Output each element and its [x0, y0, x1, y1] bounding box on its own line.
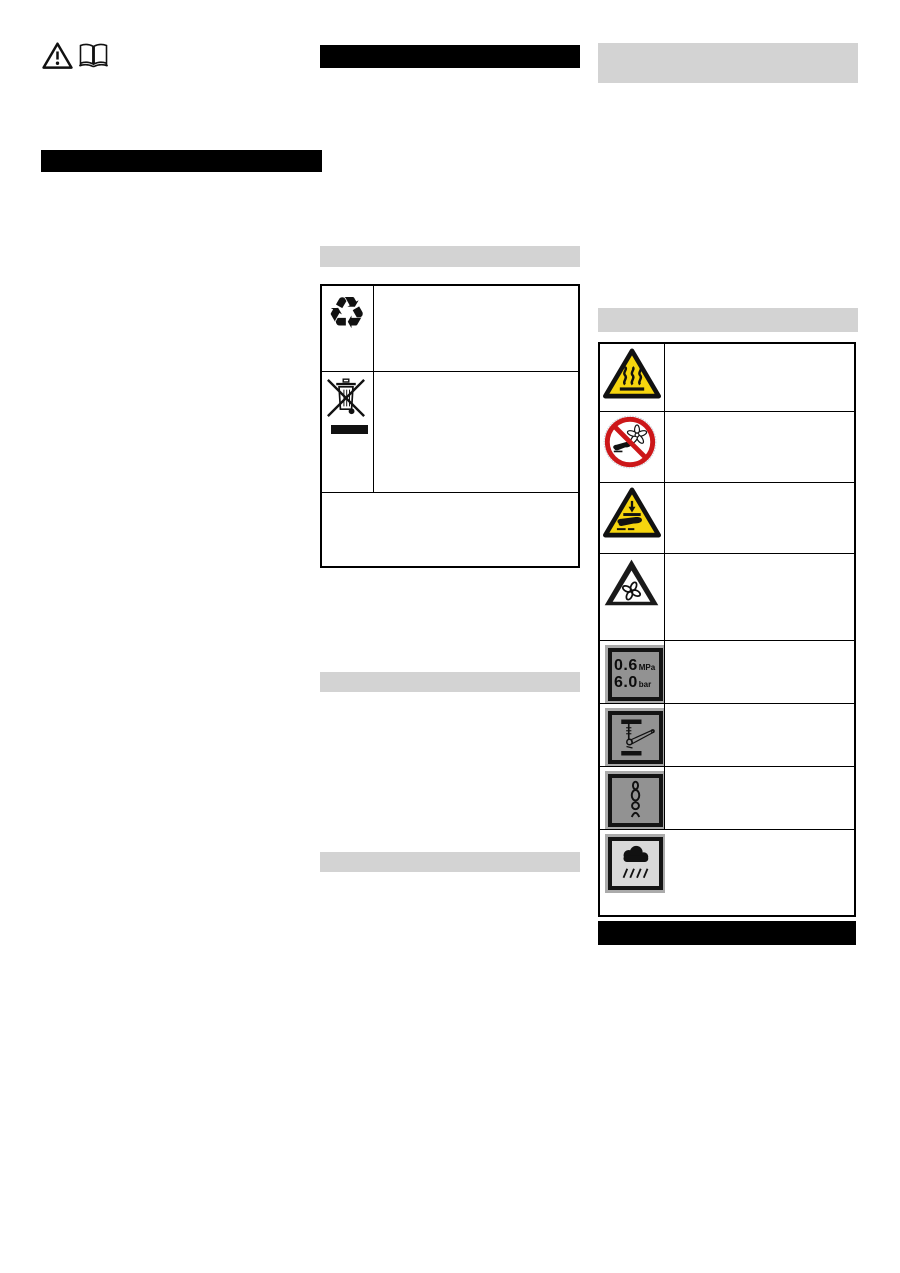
table-cell-description [374, 286, 578, 372]
disposal-symbols-table: ♻ [320, 284, 580, 568]
jack-point-plate-icon [608, 711, 663, 764]
middle-section-bar-3 [320, 852, 580, 872]
right-subheading-bar [598, 308, 858, 332]
read-manual-book-icon [77, 41, 110, 71]
pressure-value-mpa: 0.6 [614, 658, 638, 674]
hot-surface-warning-icon [603, 347, 661, 400]
table-cell-description [665, 641, 854, 704]
middle-section-bar-2 [320, 672, 580, 692]
hand-crush-warning-icon [603, 486, 661, 539]
table-cell-icon [600, 483, 665, 554]
table-cell-icon: ♻ [322, 286, 374, 372]
pressure-unit-mpa: MPa [639, 664, 655, 672]
middle-column-heading-bar [320, 45, 580, 68]
recycling-arrows-icon: ♻ [327, 289, 366, 338]
table-cell-icon [600, 830, 665, 915]
table-cell-description [665, 554, 854, 641]
table-cell-description [665, 344, 854, 412]
right-column-footer-bar [598, 921, 856, 945]
table-cell-description [665, 704, 854, 767]
weee-black-bar-icon [331, 425, 368, 434]
table-cell-icon [322, 372, 374, 493]
table-cell-icon [600, 767, 665, 830]
table-cell-icon [600, 704, 665, 767]
pressure-value-bar: 6.0 [614, 675, 638, 691]
pressure-unit-bar: bar [639, 681, 651, 689]
table-cell-description [665, 830, 854, 915]
table-cell-icon [600, 412, 665, 483]
do-not-reach-into-fan-prohibition-icon [603, 415, 661, 469]
general-warning-triangle-icon [42, 41, 73, 71]
table-cell-note [322, 493, 578, 566]
chain-lashing-plate-icon [608, 774, 663, 827]
machine-symbols-table: 0.6 MPa 6.0 bar [598, 342, 856, 917]
right-column-heading-bar [598, 43, 858, 83]
table-cell-description [665, 412, 854, 483]
table-cell-icon: 0.6 MPa 6.0 bar [600, 641, 665, 704]
manual-page: ♻ [0, 0, 900, 1273]
table-cell-description [665, 483, 854, 554]
weee-crossed-out-wheeled-bin-icon [325, 375, 370, 421]
rotating-fan-warning-icon [603, 557, 661, 609]
table-cell-description [374, 372, 578, 493]
middle-section-bar-1 [320, 246, 580, 267]
pressure-plate-icon: 0.6 MPa 6.0 bar [608, 648, 663, 701]
table-cell-icon [600, 344, 665, 412]
top-left-pictograms [42, 41, 110, 71]
left-column-heading-bar [41, 150, 322, 172]
table-cell-description [665, 767, 854, 830]
rain-cloud-plate-icon [608, 837, 663, 890]
table-cell-icon [600, 554, 665, 641]
